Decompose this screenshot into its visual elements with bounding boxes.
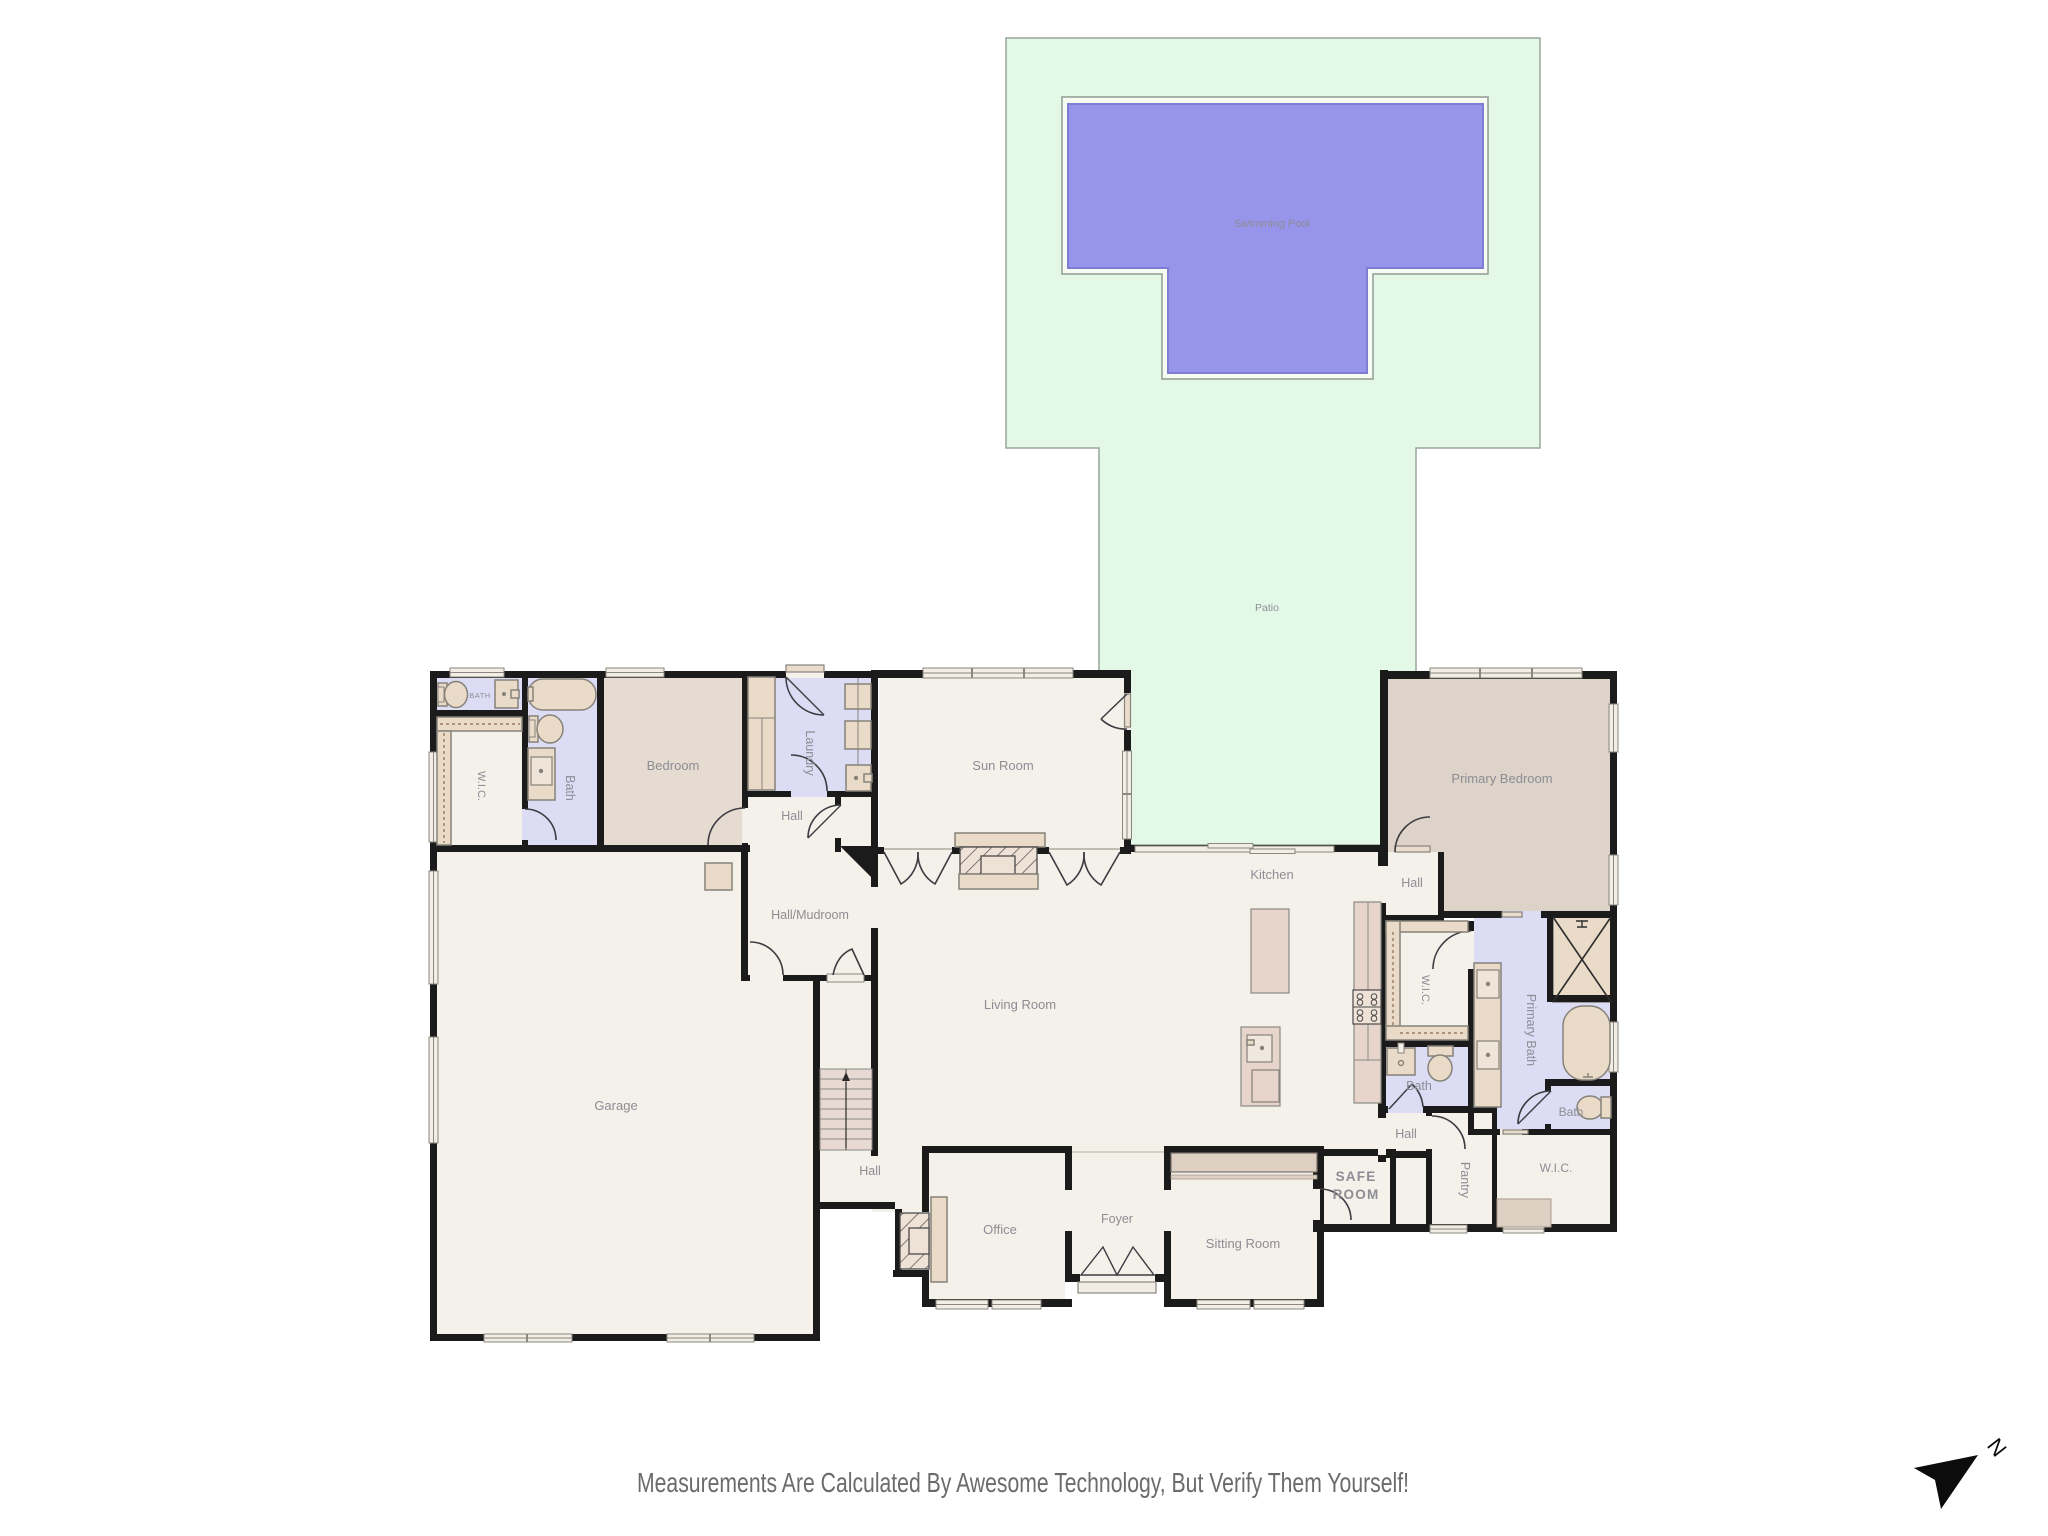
svg-text:Hall: Hall [781, 809, 803, 823]
svg-text:Patio: Patio [1255, 602, 1279, 614]
svg-text:Swimming Pool: Swimming Pool [1234, 218, 1310, 230]
svg-text:Bath: Bath [563, 775, 577, 801]
svg-text:Bath: Bath [1406, 1079, 1432, 1093]
svg-text:Sun Room: Sun Room [972, 758, 1033, 773]
svg-text:Garage: Garage [594, 1098, 637, 1113]
svg-text:W.I.C.: W.I.C. [475, 771, 487, 801]
svg-text:SAFE: SAFE [1336, 1169, 1377, 1184]
svg-text:Hall/Mudroom: Hall/Mudroom [771, 908, 849, 922]
svg-text:Primary Bedroom: Primary Bedroom [1451, 771, 1552, 786]
svg-text:Sitting Room: Sitting Room [1206, 1236, 1280, 1251]
svg-text:Bedroom: Bedroom [647, 758, 700, 773]
svg-text:Laundry: Laundry [803, 730, 817, 776]
svg-text:Measurements Are Calculated By: Measurements Are Calculated By Awesome T… [637, 1467, 1409, 1498]
svg-text:Bath: Bath [1559, 1105, 1584, 1119]
svg-text:BATH: BATH [469, 691, 490, 700]
svg-text:Office: Office [983, 1222, 1017, 1237]
svg-text:Hall: Hall [859, 1164, 881, 1178]
svg-text:ROOM: ROOM [1333, 1187, 1380, 1202]
svg-text:W.I.C.: W.I.C. [1540, 1161, 1573, 1175]
svg-text:Foyer: Foyer [1101, 1212, 1133, 1226]
svg-text:Living Room: Living Room [984, 997, 1056, 1012]
svg-text:Hall: Hall [1395, 1127, 1417, 1141]
svg-text:Primary Bath: Primary Bath [1524, 994, 1538, 1066]
svg-text:W.I.C.: W.I.C. [1419, 975, 1431, 1005]
svg-text:Hall: Hall [1401, 876, 1423, 890]
svg-text:Kitchen: Kitchen [1250, 867, 1293, 882]
svg-text:Pantry: Pantry [1458, 1162, 1472, 1199]
